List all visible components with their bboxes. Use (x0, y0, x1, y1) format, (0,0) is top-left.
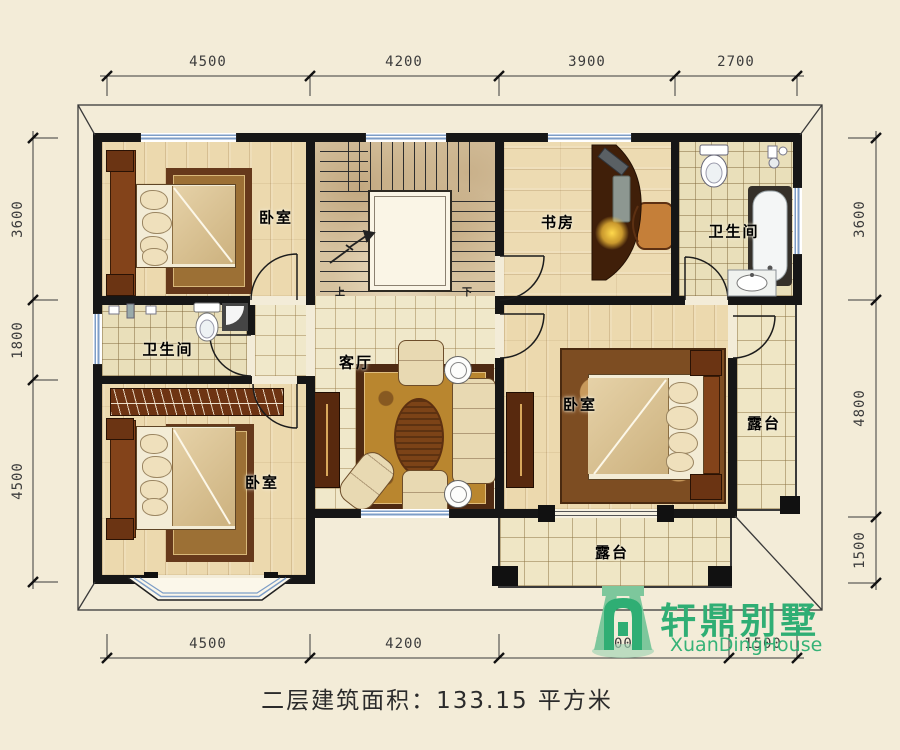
terrace-post (492, 566, 518, 586)
wall-exterior-bottom-left-b (272, 575, 315, 584)
stair-treads-right (448, 192, 495, 292)
nightstand (106, 518, 134, 540)
dim-top-4: 2700 (717, 54, 755, 70)
bed-pillow (140, 480, 168, 500)
stair-treads-left (320, 150, 368, 292)
dim-top-2: 4200 (385, 54, 423, 70)
nightstand (106, 150, 134, 172)
dim-top-3: 3900 (568, 54, 606, 70)
room-label-terrace-right: 露台 (747, 413, 781, 434)
study-chair (636, 202, 674, 250)
terrace-post (780, 496, 800, 514)
wall-interior (93, 296, 250, 305)
nightstand (690, 474, 722, 500)
window-study (547, 133, 632, 142)
bed-duvet (588, 378, 669, 474)
window-stair-hall (365, 133, 447, 142)
room-label-bedroom-bottom-left: 卧室 (245, 472, 279, 493)
logo: 轩鼎别墅 XuanDingHouse (588, 578, 828, 670)
room-label-bath-left: 卫生间 (142, 339, 193, 360)
side-table-top (444, 356, 472, 384)
wall-interior (728, 296, 802, 305)
armchair-top (398, 340, 444, 386)
room-label-study: 书房 (541, 212, 575, 233)
logo-icon (588, 578, 658, 660)
dim-right-2: 4800 (852, 389, 868, 427)
terrace-sliding-door (555, 509, 657, 518)
bed-pillow (140, 190, 168, 210)
sofa-main (452, 378, 496, 484)
room-label-bedroom-right: 卧室 (563, 394, 597, 415)
wall-interior (671, 133, 679, 305)
bed-pillow (668, 432, 698, 454)
wall-interior (306, 376, 315, 584)
room-label-terrace-bottom: 露台 (595, 542, 629, 563)
room-label-living: 客厅 (339, 352, 373, 373)
floor-plan-canvas: 卧室 书房 卫生间 卫生间 客厅 卧室 露台 卧室 露台 上 下 4500 42… (0, 0, 900, 750)
wardrobe (110, 388, 284, 416)
room-label-bedroom-top-left: 卧室 (259, 207, 293, 228)
dim-left-2: 1800 (10, 321, 26, 359)
bed-pillow (142, 456, 172, 478)
nightstand (106, 274, 134, 296)
nightstand (106, 418, 134, 440)
dim-right-1: 3600 (852, 200, 868, 238)
floor-bath-top-right (679, 142, 793, 296)
wall-interior (495, 296, 504, 314)
stairwell-void (368, 190, 452, 292)
stair-down-mark: 下 (462, 284, 472, 299)
wall-interior (495, 358, 504, 518)
dim-right-3: 1500 (852, 531, 868, 569)
bed-headboard-right (702, 376, 720, 474)
dim-top-1: 4500 (189, 54, 227, 70)
bed-pillow (142, 212, 172, 234)
wall-interior (247, 305, 255, 335)
floor-terrace-right (737, 305, 795, 509)
window-bath-left (93, 313, 102, 365)
bed-pillow (666, 452, 694, 472)
dim-bottom-2: 4200 (385, 636, 423, 652)
wall-interior (495, 133, 504, 256)
wall-interior (504, 296, 685, 305)
wall-exterior-bottom-left-a (93, 575, 150, 584)
bed-pillow (666, 406, 698, 430)
window-living-bottom (360, 509, 450, 518)
bed-duvet (172, 186, 235, 264)
bed-pillow (142, 498, 168, 516)
window-bath-top-right (793, 187, 802, 255)
window-bedroom-top-left (140, 133, 237, 142)
terrace-post (657, 505, 674, 522)
wall-interior (728, 358, 737, 518)
sideboard-left (312, 392, 340, 488)
side-table-bottom (444, 480, 472, 508)
rug-center-oval (394, 398, 444, 476)
bay-window-jamb (264, 572, 278, 584)
floor-hallway-nook (255, 305, 306, 376)
bed-pillow (668, 382, 698, 404)
room-label-bath-top-right: 卫生间 (708, 221, 759, 242)
dim-bottom-1: 4500 (189, 636, 227, 652)
sideboard-right (506, 392, 534, 488)
terrace-post (538, 505, 555, 522)
nightstand (690, 350, 722, 376)
dim-left-3: 4500 (10, 462, 26, 500)
bed-pillow (140, 434, 168, 454)
dim-left-1: 3600 (10, 200, 26, 238)
bay-window-jamb (144, 572, 158, 584)
wall-interior (306, 133, 315, 305)
stair-up-mark: 上 (335, 284, 345, 299)
bed-pillow (142, 248, 168, 266)
parapet-terrace-right (795, 305, 797, 511)
bed-duvet (172, 428, 235, 526)
floor-area-text: 二层建筑面积：133.15 平方米 (261, 681, 613, 715)
logo-name-en: XuanDingHouse (670, 634, 822, 656)
wall-interior (93, 376, 252, 384)
